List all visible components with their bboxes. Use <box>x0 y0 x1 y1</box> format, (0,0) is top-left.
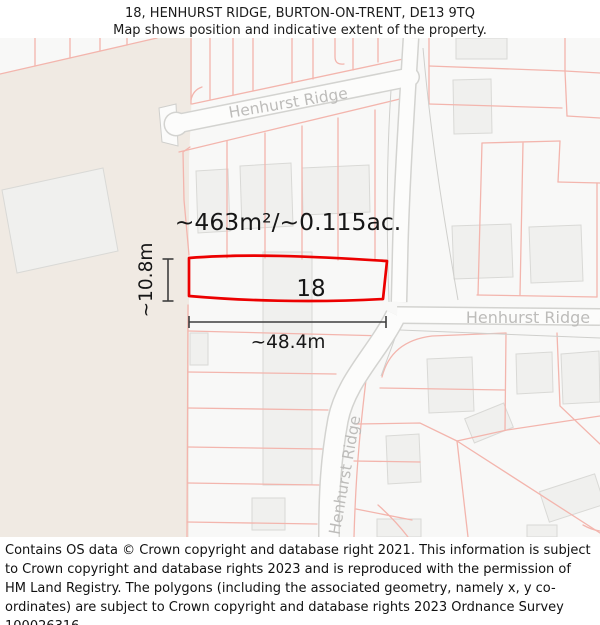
area-label: ~463m²/~0.115ac. <box>175 208 402 236</box>
copyright-text: Contains OS data © Crown copyright and d… <box>0 537 600 625</box>
map: Henhurst Ridge Henhurst Ridge Henhurst R… <box>0 38 600 537</box>
height-dimension-label: ~10.8m <box>136 243 157 318</box>
footer: Contains OS data © Crown copyright and d… <box>0 537 600 625</box>
plot-number-label: 18 <box>296 276 325 302</box>
width-dimension-label: ~48.4m <box>251 332 326 353</box>
property-map-report: 18, HENHURST RIDGE, BURTON-ON-TRENT, DE1… <box>0 0 600 625</box>
page-title: 18, HENHURST RIDGE, BURTON-ON-TRENT, DE1… <box>0 0 600 22</box>
page-subtitle: Map shows position and indicative extent… <box>0 22 600 39</box>
road-label-east: Henhurst Ridge <box>466 308 590 327</box>
map-container: Henhurst Ridge Henhurst Ridge Henhurst R… <box>0 38 600 537</box>
header: 18, HENHURST RIDGE, BURTON-ON-TRENT, DE1… <box>0 0 600 38</box>
